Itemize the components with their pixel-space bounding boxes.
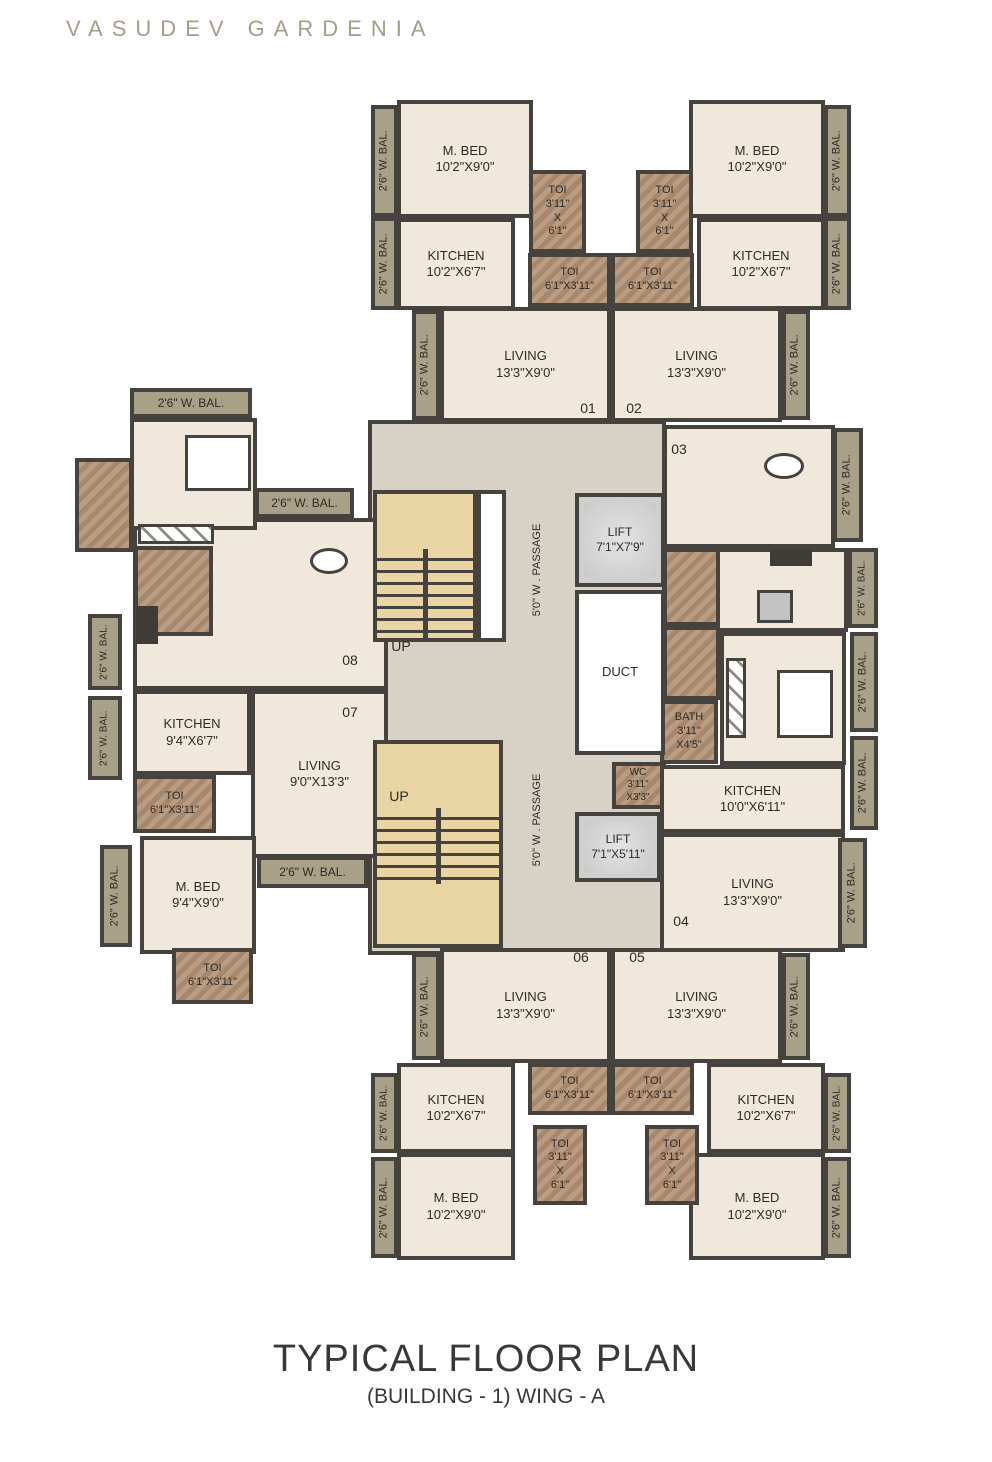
room-label-line: 10'2"X6'7": [731, 264, 790, 280]
room-label: 2'6" W. BAL.: [375, 1161, 394, 1254]
balcony: 2'6" W. BAL.: [848, 548, 878, 628]
room-label: LIVING13'3"X9'0": [615, 952, 778, 1059]
room-label: LIFT7'1"X7'9": [579, 497, 661, 583]
room-label: 2'6" W. BAL.: [92, 618, 118, 686]
room-label-line: M. BED: [735, 1190, 780, 1206]
room-label: 2'6" W. BAL.: [375, 109, 394, 213]
room-label-line: 6'1": [548, 225, 566, 239]
kitchen-06: KITCHEN10'2"X6'7": [397, 1063, 515, 1153]
balcony: 2'6" W. BAL.: [824, 1073, 851, 1153]
dark-icon: [770, 550, 812, 566]
plan-annotation: 03: [671, 441, 687, 457]
room-label-line: 2'6" W. BAL.: [378, 130, 392, 191]
room-label-line: 2'6" W. BAL.: [846, 862, 860, 923]
room-label-line: KITCHEN: [732, 248, 789, 264]
room-label: 2'6" W. BAL.: [416, 314, 436, 416]
balcony: 2'6" W. BAL.: [257, 856, 368, 888]
room-label-line: 3'11": [548, 1151, 572, 1165]
room-label: 2'6" W. BAL.: [852, 552, 874, 624]
room-label-line: M. BED: [176, 879, 221, 895]
room-label-line: 2'6" W. BAL.: [419, 976, 433, 1037]
room-label: LIVING13'3"X9'0": [664, 837, 841, 948]
floor-plan-page: VASUDEV GARDENIA M. BED10'2"X9'0"KITCHEN…: [0, 0, 992, 1462]
room-label-line: 9'0"X13'3": [290, 774, 349, 790]
balcony: 2'6" W. BAL.: [371, 105, 398, 217]
room-label-line: 7'1"X5'11": [591, 847, 645, 862]
room-label: 2'6" W. BAL.: [416, 957, 436, 1056]
room-label: 2'6" W. BAL.: [375, 1077, 394, 1149]
bed-icon: [777, 670, 833, 738]
balcony: 2'6" W. BAL.: [412, 953, 440, 1060]
wardrobe-icon: [726, 658, 746, 738]
room-label-line: M. BED: [735, 143, 780, 159]
room-label: M. BED10'2"X9'0": [401, 1157, 511, 1256]
oval-icon: [310, 548, 348, 574]
room-label: DUCT: [579, 594, 661, 751]
room-label-line: M. BED: [443, 143, 488, 159]
room-label-line: X: [554, 212, 561, 226]
stair-divider: [436, 808, 441, 884]
room-label-line: M. BED: [434, 1190, 479, 1206]
room-label-line: KITCHEN: [427, 248, 484, 264]
room-label-line: 13'3"X9'0": [723, 893, 782, 909]
toi-06-a: TOI6'1"X3'11": [528, 1063, 611, 1115]
room-label-line: TOI: [548, 184, 566, 198]
balcony: 2'6" W. BAL.: [782, 310, 810, 420]
lift-lower: LIFT7'1"X5'11": [575, 812, 661, 882]
room-label: 2'6" W. BAL.: [828, 109, 847, 213]
room-label-line: 2'6" W. BAL.: [857, 752, 871, 813]
room-label: 2'6" W. BAL.: [134, 392, 248, 414]
room-label-line: 3'11": [677, 725, 701, 739]
room-label-line: 2'6" W. BAL.: [831, 1177, 845, 1238]
room-label-line: 6'1"X3'11": [150, 804, 199, 818]
room-label: LIFT7'1"X5'11": [579, 816, 657, 878]
stairs-lower: [373, 740, 503, 948]
room-label-line: 13'3"X9'0": [496, 1006, 555, 1022]
living-05: LIVING13'3"X9'0": [611, 948, 782, 1063]
toi-01-b: TOI6'1"X3'11": [528, 253, 611, 307]
room-label: TOI3'11"X6'1": [533, 174, 582, 249]
room-label-line: 2'6" W. BAL.: [99, 710, 112, 765]
plan-annotation: 05: [629, 949, 645, 965]
room-label: 2'6" W. BAL.: [92, 700, 118, 776]
room-label-line: 2'6" W. BAL.: [789, 334, 803, 395]
room-label: 2'6" W. BAL.: [259, 492, 350, 514]
toi-06-b: TOI3'11"X6'1": [533, 1125, 587, 1205]
room-label-line: LIVING: [675, 989, 718, 1005]
room-label-line: 2'6" W. BAL.: [841, 454, 855, 515]
room-label-line: 13'3"X9'0": [667, 365, 726, 381]
plan-annotation: 06: [573, 949, 589, 965]
room-label-line: 13'3"X9'0": [496, 365, 555, 381]
lift-upper: LIFT7'1"X7'9": [575, 493, 665, 587]
room-label-line: 2'6" W. BAL.: [419, 334, 433, 395]
room-label: KITCHEN10'2"X6'7": [711, 1067, 821, 1149]
room-label-line: 3'11": [627, 779, 648, 792]
living-06: LIVING13'3"X9'0": [440, 948, 611, 1063]
room-label-line: TOI: [165, 790, 183, 804]
balcony: 2'6" W. BAL.: [824, 1157, 851, 1258]
room-label-line: KITCHEN: [737, 1092, 794, 1108]
balcony: 2'6" W. BAL.: [824, 217, 851, 310]
bath-03: BATH3'11"X4'5": [660, 700, 718, 764]
room-label-line: 7'1"X7'9": [596, 540, 644, 555]
plan-annotation: 04: [673, 913, 689, 929]
room-label-line: 6'1"X3'11": [545, 1089, 594, 1103]
balcony: 2'6" W. BAL.: [100, 845, 132, 947]
room-label-line: X: [556, 1165, 563, 1179]
stair-landing: [477, 490, 506, 642]
room-label-line: WC: [630, 767, 647, 780]
toi-07: TOI6'1"X3'11": [133, 775, 216, 833]
room-label: 2'6" W. BAL.: [842, 842, 863, 944]
balcony: 2'6" W. BAL.: [833, 428, 863, 542]
room-label-line: TOI: [551, 1138, 569, 1152]
bed-icon: [185, 435, 251, 491]
room-label: M. BED10'2"X9'0": [401, 104, 529, 214]
plan-title: TYPICAL FLOOR PLAN: [131, 1338, 841, 1381]
room-label-line: 2'6" W. BAL.: [158, 396, 225, 411]
room-label: 2'6" W. BAL.: [854, 740, 874, 826]
room-label-line: TOI: [203, 962, 221, 976]
room-label: TOI6'1"X3'11": [615, 257, 690, 303]
box-icon: [757, 590, 793, 623]
room-label-line: KITCHEN: [163, 716, 220, 732]
room-label: TOI6'1"X3'11": [532, 1067, 607, 1111]
room-label-line: 2'6" W. BAL.: [271, 496, 338, 511]
stair-divider: [423, 549, 428, 638]
wardrobe-icon: [138, 524, 214, 544]
kitchen-07: KITCHEN9'4"X6'7": [133, 690, 251, 775]
toi-02-a: TOI3'11"X6'1": [636, 170, 693, 253]
kitchen-02: KITCHEN10'2"X6'7": [697, 218, 825, 310]
room-label-line: 2'6" W. BAL.: [831, 1085, 844, 1140]
room-label-line: LIFT: [608, 525, 633, 540]
room-label-line: 6'1": [655, 225, 673, 239]
wc: WC3'11"X3'3": [612, 762, 664, 809]
room-label-line: 2'6" W. BAL.: [378, 1177, 392, 1238]
balcony: 2'6" W. BAL.: [255, 488, 354, 518]
room-label-line: 2'6" W. BAL.: [831, 233, 845, 294]
room-label-line: 3'11": [660, 1151, 684, 1165]
room-label: 2'6" W. BAL.: [854, 636, 874, 728]
room-label-line: 9'4"X9'0": [172, 895, 224, 911]
room-label-line: LIVING: [504, 989, 547, 1005]
room-label: 2'6" W. BAL.: [828, 221, 847, 306]
room-label: BATH3'11"X4'5": [664, 704, 714, 760]
room-label: TOI6'1"X3'11": [137, 779, 212, 829]
room-label-line: TOI: [560, 266, 578, 280]
room-label-line: 6'1": [551, 1179, 569, 1193]
balcony: 2'6" W. BAL.: [412, 310, 440, 420]
plan-annotation: 01: [580, 400, 596, 416]
room-label: M. BED10'2"X9'0": [693, 1157, 821, 1256]
balcony: 2'6" W. BAL.: [88, 696, 122, 780]
room-label: M. BED10'2"X9'0": [693, 104, 821, 214]
room-label-line: KITCHEN: [724, 783, 781, 799]
balcony: 2'6" W. BAL.: [782, 953, 810, 1060]
room-label: TOI6'1"X3'11": [176, 952, 249, 1000]
mbed-05: M. BED10'2"X9'0": [689, 1153, 825, 1260]
kitchen-04: KITCHEN10'0"X6'11": [660, 765, 845, 833]
mbed-06: M. BED10'2"X9'0": [397, 1153, 515, 1260]
room-label-line: LIVING: [731, 876, 774, 892]
room-label-line: 10'2"X6'7": [736, 1108, 795, 1124]
room-label-line: 10'2"X6'7": [426, 1108, 485, 1124]
plan-annotation: 5'0" W . PASSAGE: [531, 774, 543, 867]
room-label-line: X: [661, 212, 668, 226]
room-label: 2'6" W. BAL.: [837, 432, 859, 538]
room-label-line: 3'11": [546, 198, 570, 212]
room-label-line: X: [668, 1165, 675, 1179]
room-label-line: 2'6" W. BAL.: [857, 651, 871, 712]
room-label: KITCHEN10'2"X6'7": [401, 222, 511, 306]
room-label-line: DUCT: [602, 664, 638, 680]
balcony: 2'6" W. BAL.: [371, 217, 398, 310]
balcony: 2'6" W. BAL.: [824, 105, 851, 217]
room-label-line: TOI: [643, 266, 661, 280]
room-label: TOI3'11"X6'1": [649, 1129, 695, 1201]
dark-icon: [136, 606, 158, 644]
balcony: 2'6" W. BAL.: [850, 632, 878, 732]
room-label: 2'6" W. BAL.: [828, 1077, 847, 1149]
living-07: LIVING9'0"X13'3": [251, 690, 388, 858]
room-label-line: TOI: [655, 184, 673, 198]
mbed-07: M. BED9'4"X9'0": [140, 836, 256, 954]
mbed-01: M. BED10'2"X9'0": [397, 100, 533, 218]
room-label-line: 6'1"X3'11": [545, 280, 594, 294]
room-label: KITCHEN10'2"X6'7": [701, 222, 821, 306]
room-label-line: 10'2"X9'0": [727, 1207, 786, 1223]
room-label: KITCHEN9'4"X6'7": [137, 694, 247, 771]
balcony: 2'6" W. BAL.: [850, 736, 878, 830]
stairs-upper: [373, 490, 477, 642]
room-label-line: LIVING: [504, 348, 547, 364]
plan-annotation: UP: [389, 788, 408, 804]
room-label: M. BED9'4"X9'0": [144, 840, 252, 950]
room-label-line: 13'3"X9'0": [667, 1006, 726, 1022]
balcony: 2'6" W. BAL.: [130, 388, 252, 418]
living-03: [663, 425, 835, 548]
room-label-line: LIVING: [298, 758, 341, 774]
toi-07-b: TOI6'1"X3'11": [172, 948, 253, 1004]
toi-02-b: TOI6'1"X3'11": [611, 253, 694, 307]
room-label-line: 10'0"X6'11": [720, 799, 785, 815]
plan-caption: TYPICAL FLOOR PLAN (BUILDING - 1) WING -…: [131, 1338, 841, 1409]
balcony: 2'6" W. BAL.: [371, 1157, 398, 1258]
balcony: 2'6" W. BAL.: [838, 838, 867, 948]
room-label-line: LIVING: [675, 348, 718, 364]
room-label: TOI6'1"X3'11": [532, 257, 607, 303]
kitchen-05: KITCHEN10'2"X6'7": [707, 1063, 825, 1153]
room-label: 2'6" W. BAL.: [104, 849, 128, 943]
room-label-line: 2'6" W. BAL.: [378, 233, 392, 294]
room-label: TOI3'11"X6'1": [640, 174, 689, 249]
room-label: TOI6'1"X3'11": [615, 1067, 690, 1111]
living-04: LIVING13'3"X9'0": [660, 833, 845, 952]
room-label-line: X4'5": [676, 739, 702, 753]
plan-annotation: 5'0" W . PASSAGE: [531, 524, 543, 617]
room-label: 2'6" W. BAL.: [375, 221, 394, 306]
plan-subtitle: (BUILDING - 1) WING - A: [131, 1385, 841, 1409]
room-label: 2'6" W. BAL.: [261, 860, 364, 884]
room-label-line: 6'1": [663, 1179, 681, 1193]
toi-03-b: [663, 626, 720, 700]
room-label-line: 2'6" W. BAL.: [857, 560, 870, 615]
plan-annotation: UP: [391, 638, 410, 654]
floor-plan: M. BED10'2"X9'0"KITCHEN10'2"X6'7"M. BED1…: [0, 0, 992, 1462]
room-label: 2'6" W. BAL.: [786, 957, 806, 1056]
room-label-line: 2'6" W. BAL.: [109, 865, 123, 926]
toi-05-b: TOI3'11"X6'1": [645, 1125, 699, 1205]
plan-annotation: 02: [626, 400, 642, 416]
room-label: 2'6" W. BAL.: [828, 1161, 847, 1254]
duct: DUCT: [575, 590, 665, 755]
room-label: 2'6" W. BAL.: [786, 314, 806, 416]
room-label-line: 6'1"X3'11": [628, 1089, 677, 1103]
toi-01-a: TOI3'11"X6'1": [529, 170, 586, 253]
room-label-line: 9'4"X6'7": [166, 733, 218, 749]
room-label-line: X3'3": [626, 792, 649, 805]
room-label: LIVING9'0"X13'3": [255, 694, 384, 854]
room-label-line: BATH: [675, 711, 704, 725]
plan-annotation: 07: [342, 704, 358, 720]
room-label-line: TOI: [560, 1075, 578, 1089]
room-label-line: 6'1"X3'11": [188, 976, 237, 990]
balcony: 2'6" W. BAL.: [371, 1073, 398, 1153]
room-label-line: 2'6" W. BAL.: [831, 130, 845, 191]
room-label-line: 2'6" W. BAL.: [378, 1085, 391, 1140]
balcony: 2'6" W. BAL.: [88, 614, 122, 690]
room-label-line: 2'6" W. BAL.: [279, 865, 346, 880]
room-label-line: 10'2"X9'0": [435, 159, 494, 175]
room-label-line: 10'2"X6'7": [426, 264, 485, 280]
room-label-line: 10'2"X9'0": [727, 159, 786, 175]
oval-icon: [764, 453, 804, 479]
toi-05-a: TOI6'1"X3'11": [611, 1063, 694, 1115]
room-label-line: KITCHEN: [427, 1092, 484, 1108]
room-label-line: LIFT: [606, 832, 631, 847]
room-label-line: 10'2"X9'0": [426, 1207, 485, 1223]
toi-03-a: [663, 548, 720, 626]
room-label: KITCHEN10'2"X6'7": [401, 1067, 511, 1149]
room-label: LIVING13'3"X9'0": [444, 952, 607, 1059]
room-label-line: 2'6" W. BAL.: [789, 976, 803, 1037]
room-label: TOI3'11"X6'1": [537, 1129, 583, 1201]
kitchen-01: KITCHEN10'2"X6'7": [397, 218, 515, 310]
room-label: KITCHEN10'0"X6'11": [664, 769, 841, 829]
mbed-02: M. BED10'2"X9'0": [689, 100, 825, 218]
room-label-line: 2'6" W. BAL.: [99, 624, 112, 679]
room-label-line: 6'1"X3'11": [628, 280, 677, 294]
room-label-line: 3'11": [653, 198, 677, 212]
room-label-line: TOI: [663, 1138, 681, 1152]
toi-08-a: [75, 458, 133, 552]
room-label-line: TOI: [643, 1075, 661, 1089]
room-label: WC3'11"X3'3": [616, 766, 660, 805]
plan-annotation: 08: [342, 652, 358, 668]
